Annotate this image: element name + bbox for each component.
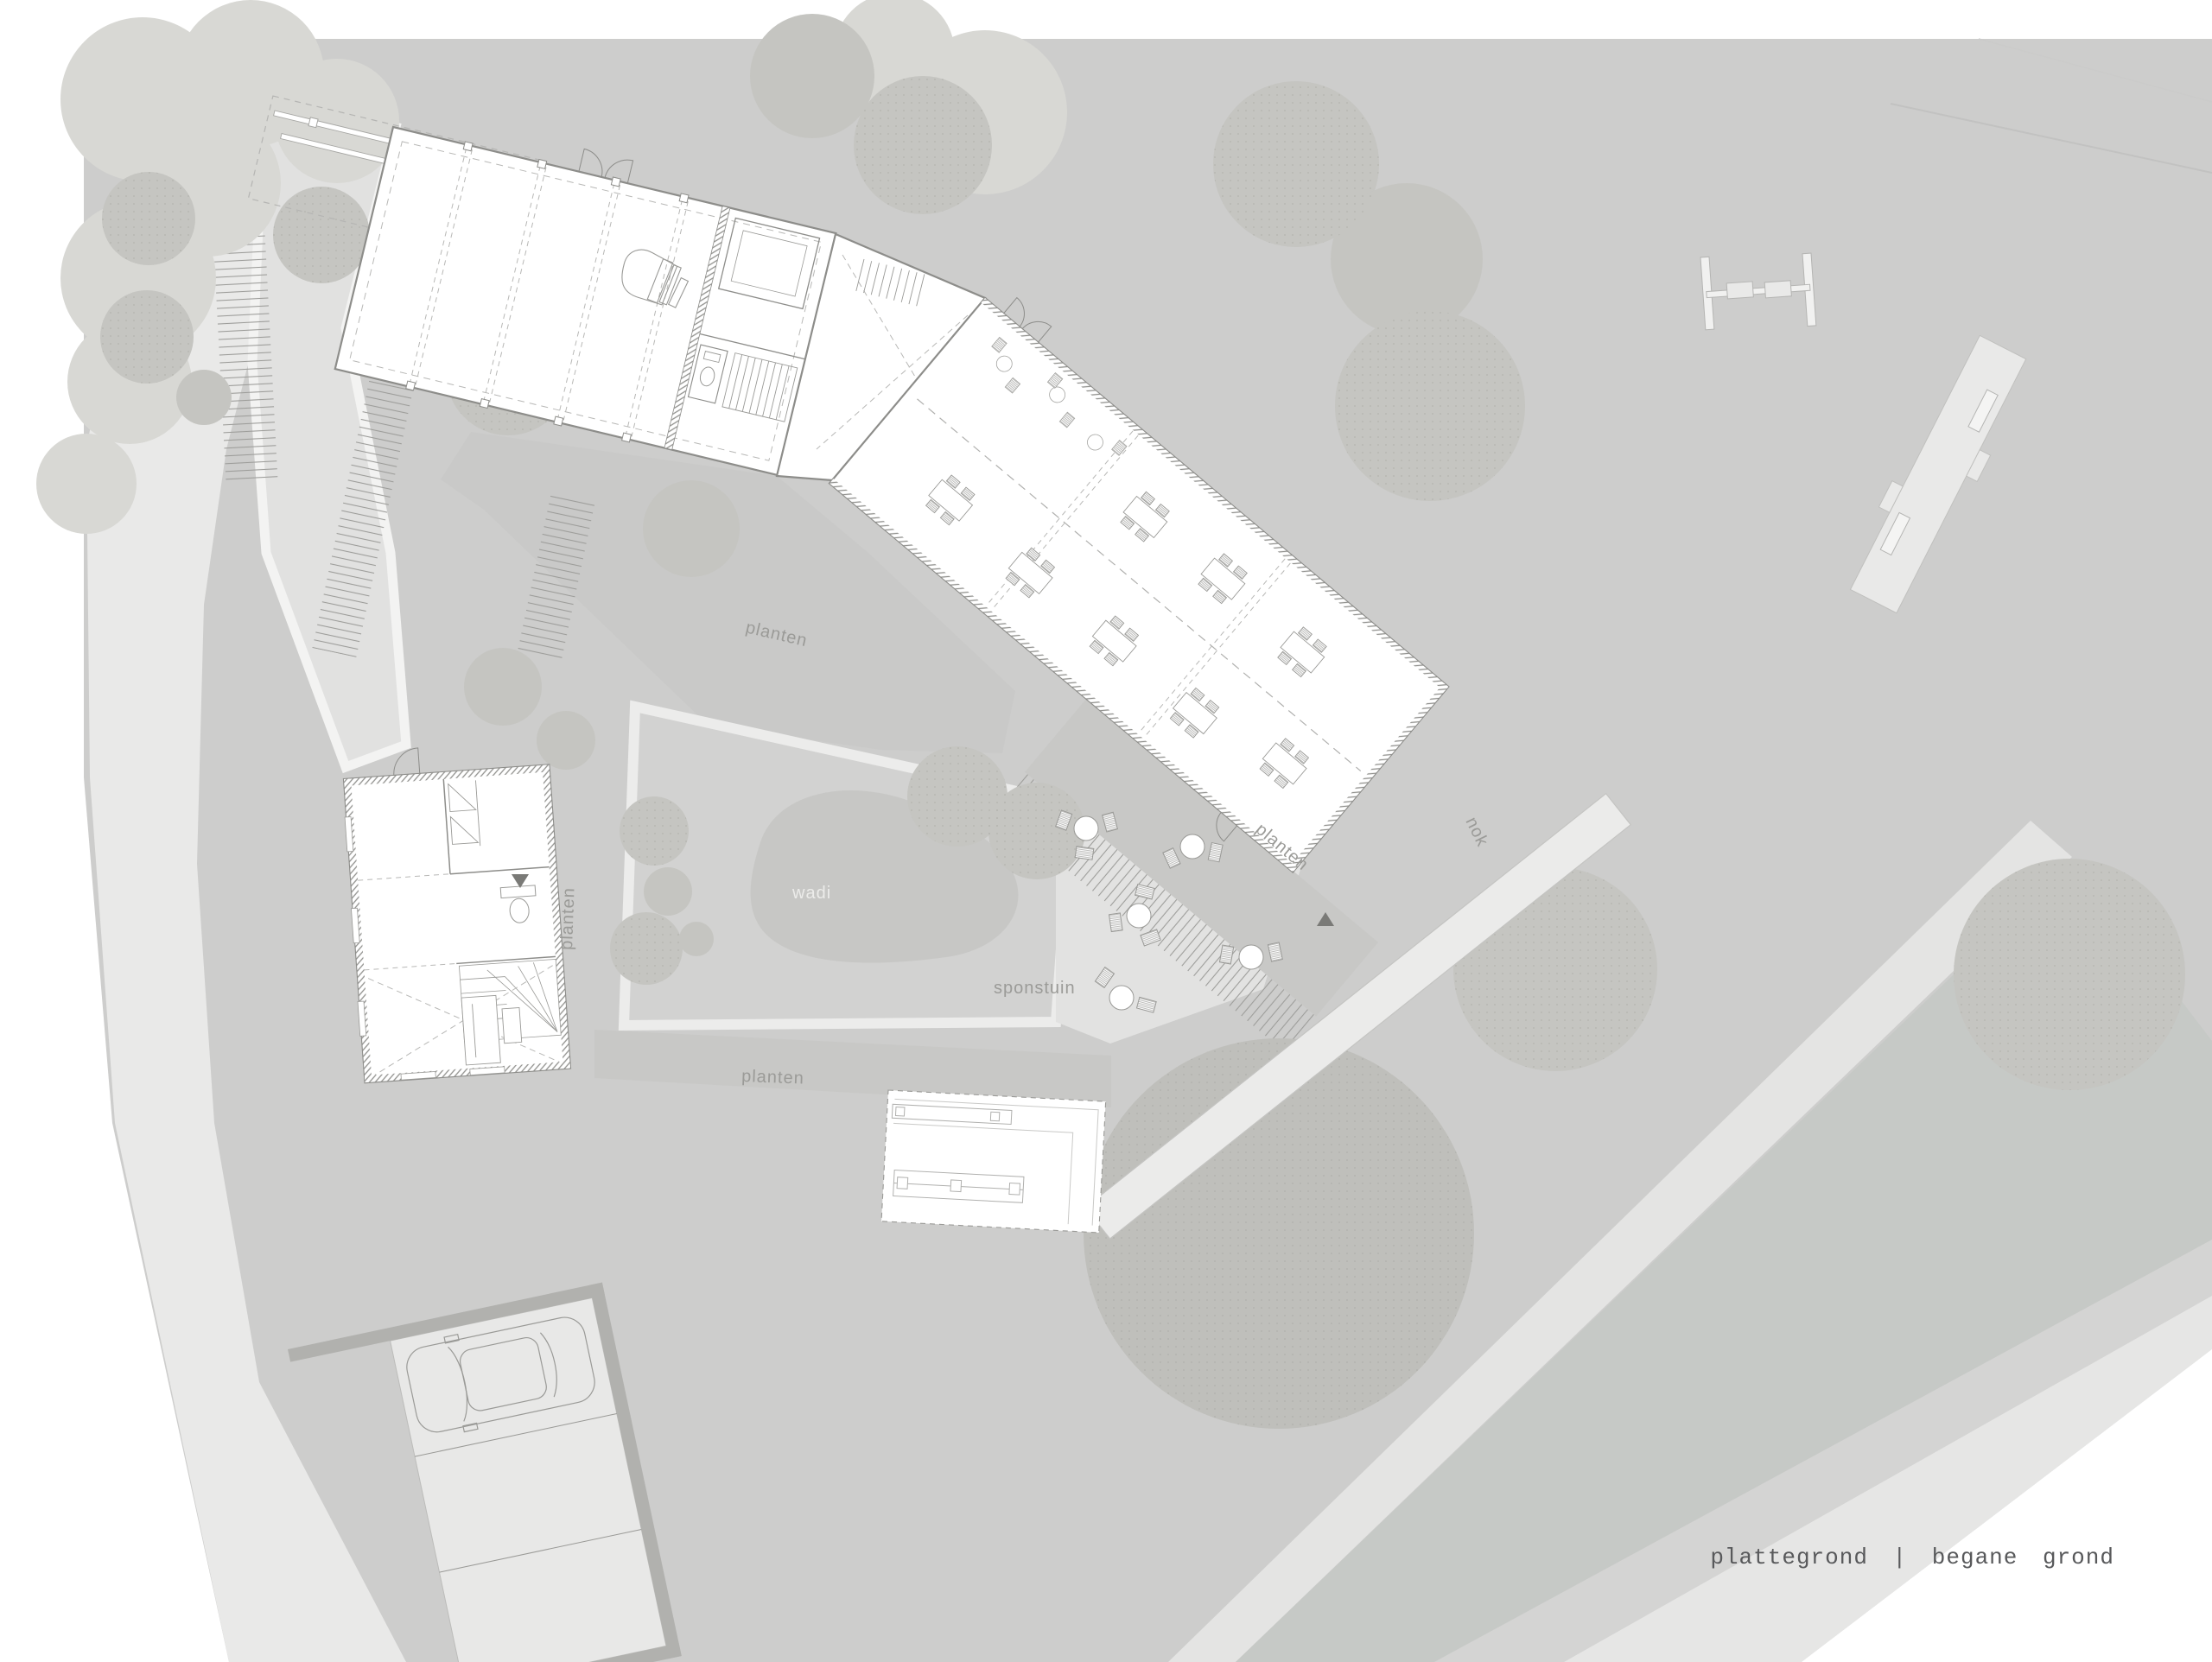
sheet-caption: plattegrond | begane grond (1710, 1545, 2114, 1570)
shrub (644, 867, 692, 916)
site-plan-sheet: planten planten planten planten wadi spo… (0, 0, 2212, 1662)
tree (537, 711, 595, 770)
tree (643, 480, 740, 577)
tree (750, 14, 874, 138)
shrub (679, 922, 714, 956)
tree (464, 648, 542, 726)
label-sponstuin: sponstuin (994, 979, 1076, 998)
outbuilding (340, 739, 570, 1082)
plan-drawing: planten planten planten planten wadi spo… (0, 0, 2212, 1662)
tree (176, 370, 232, 425)
label-planten-south: planten (741, 1067, 804, 1088)
label-planten-house: planten (557, 887, 579, 950)
label-wadi: wadi (791, 884, 831, 903)
entrance-pavilion (881, 1090, 1106, 1233)
